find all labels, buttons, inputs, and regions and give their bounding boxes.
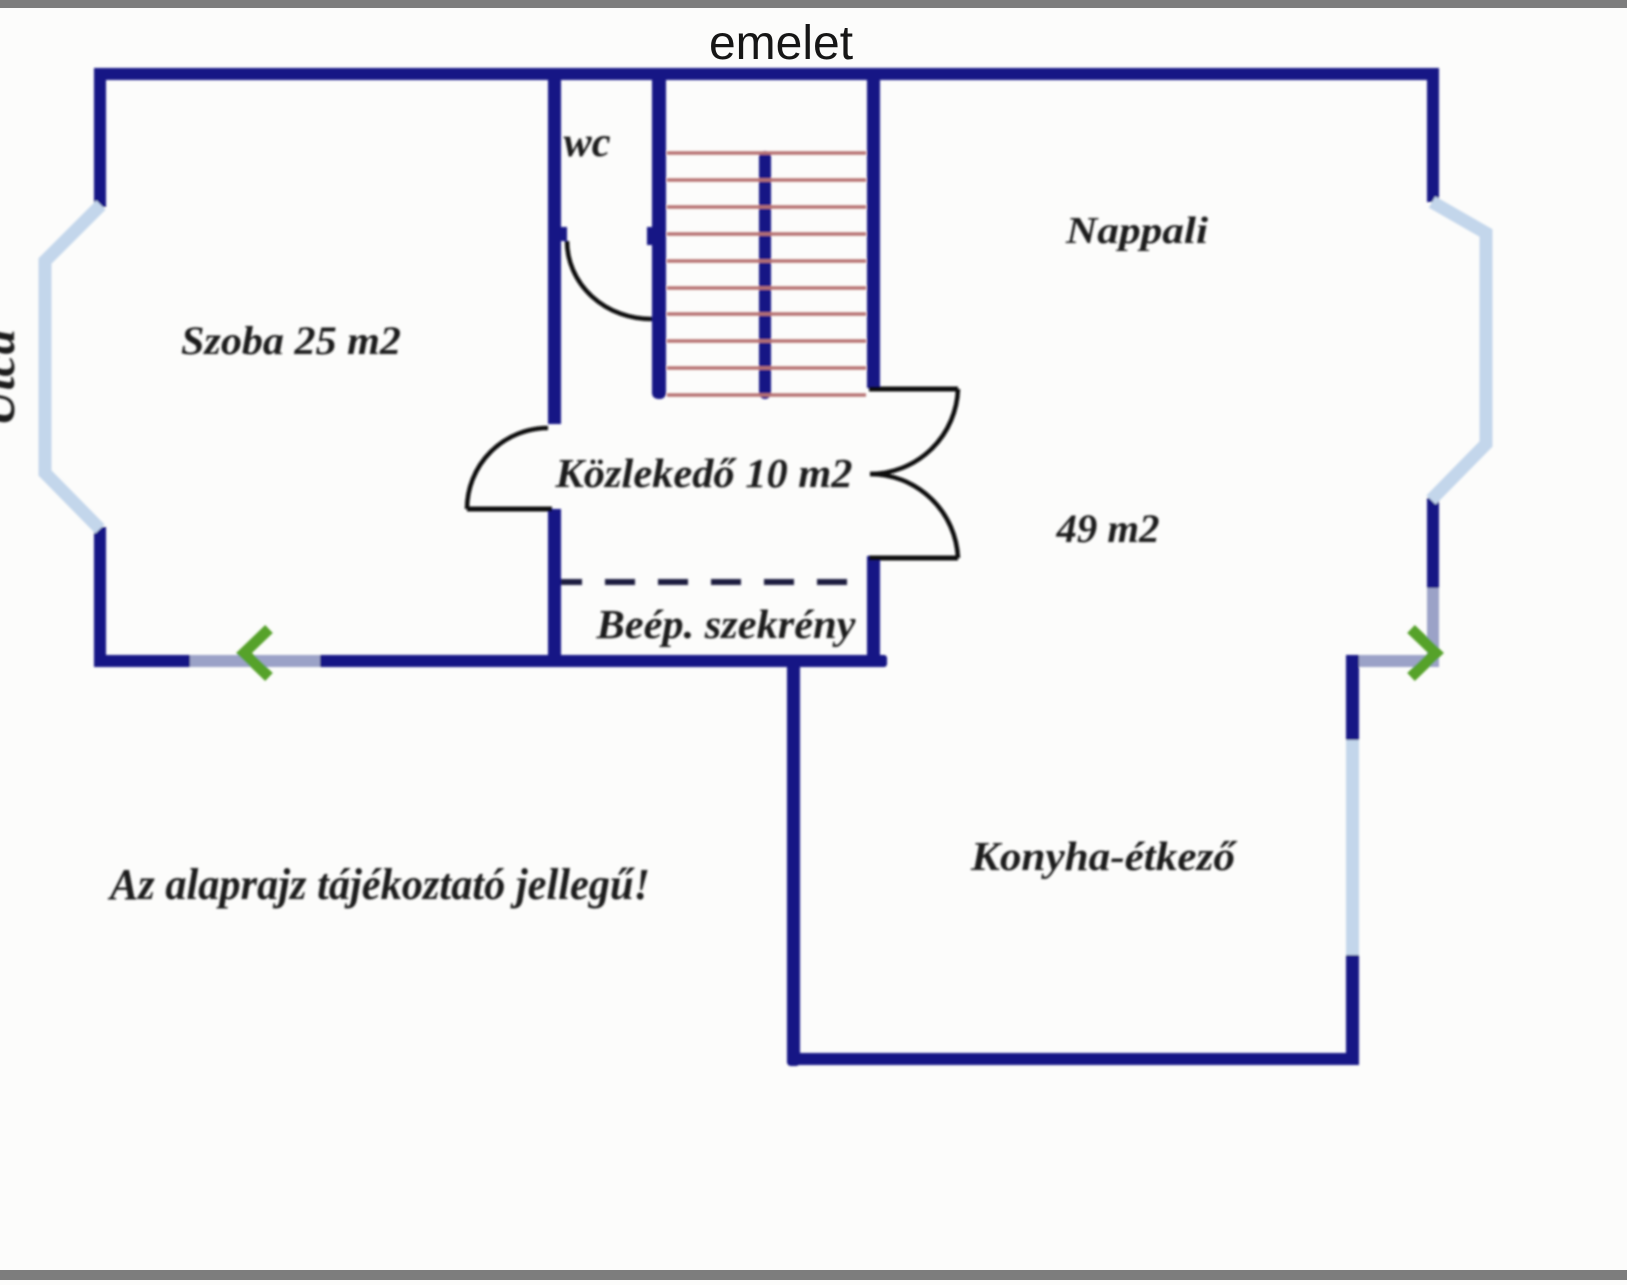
svg-text:49 m2: 49 m2 xyxy=(1055,506,1159,551)
svg-text:Az alaprajz tájékoztató jelleg: Az alaprajz tájékoztató jellegű! xyxy=(107,860,650,909)
svg-text:Nappali: Nappali xyxy=(1065,210,1209,252)
svg-text:emelet: emelet xyxy=(709,17,853,70)
svg-text:Konyha-étkező: Konyha-étkező xyxy=(970,833,1238,879)
svg-text:Szoba 25 m2: Szoba 25 m2 xyxy=(181,318,401,363)
svg-text:wc: wc xyxy=(564,120,611,166)
svg-text:Utca: Utca xyxy=(0,329,25,426)
svg-text:Beép. szekrény: Beép. szekrény xyxy=(595,601,856,647)
svg-text:Közlekedő 10 m2: Közlekedő 10 m2 xyxy=(554,450,852,496)
